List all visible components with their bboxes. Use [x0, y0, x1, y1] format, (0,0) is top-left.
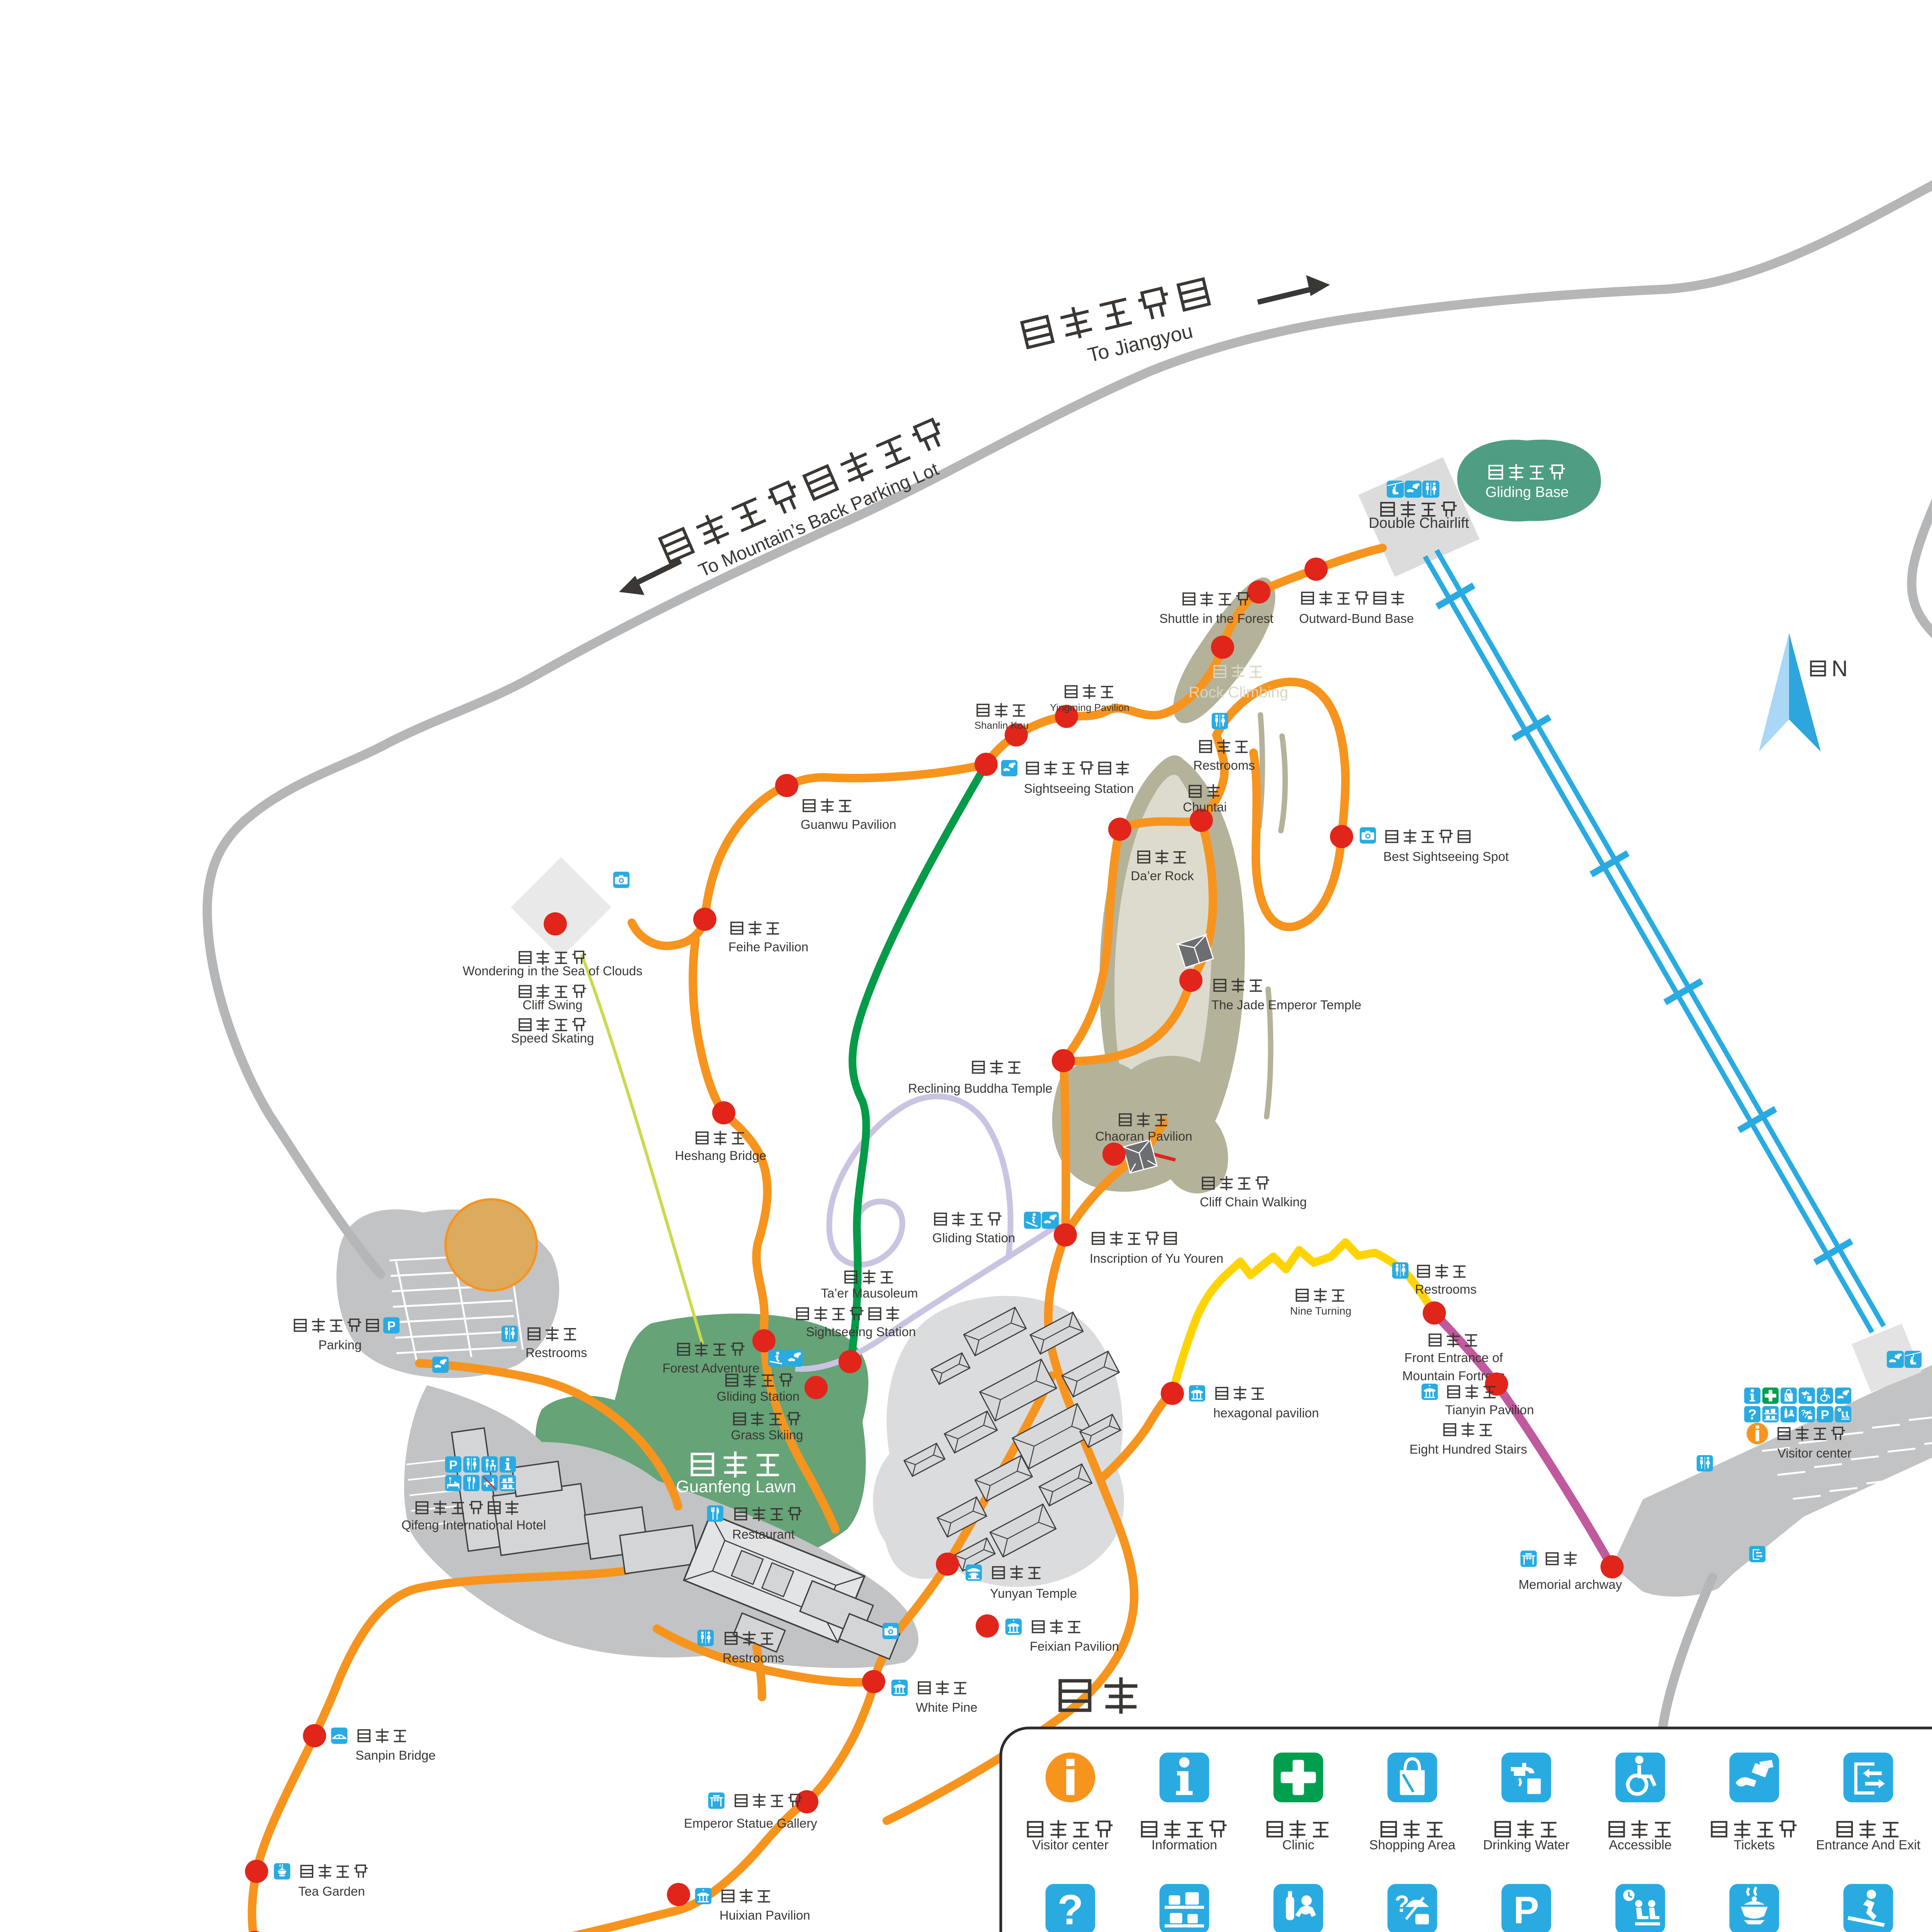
- svg-text:Visitor center: Visitor center: [1032, 1838, 1109, 1852]
- svg-text:Entrance And Exit: Entrance And Exit: [1816, 1838, 1921, 1852]
- svg-text:Feixian Pavilion: Feixian Pavilion: [1030, 1639, 1119, 1653]
- svg-text:Eight Hundred Stairs: Eight Hundred Stairs: [1410, 1442, 1527, 1456]
- svg-text:hexagonal pavilion: hexagonal pavilion: [1213, 1406, 1319, 1420]
- svg-text:Rock Climbing: Rock Climbing: [1189, 684, 1288, 701]
- svg-text:Memorial archway: Memorial archway: [1519, 1577, 1622, 1592]
- svg-text:Emperor Statue Gallery: Emperor Statue Gallery: [684, 1816, 817, 1830]
- svg-text:Feihe Pavilion: Feihe Pavilion: [728, 940, 808, 954]
- svg-text:Ta’er Mausoleum: Ta’er Mausoleum: [821, 1286, 918, 1300]
- svg-text:Sightseeing Station: Sightseeing Station: [806, 1325, 916, 1339]
- svg-text:Front Entrance of: Front Entrance of: [1405, 1350, 1503, 1365]
- svg-text:Heshang Bridge: Heshang Bridge: [675, 1148, 767, 1163]
- svg-text:Shanlin Kou: Shanlin Kou: [975, 719, 1029, 731]
- svg-text:Outward-Bund Base: Outward-Bund Base: [1299, 611, 1414, 626]
- svg-text:Restrooms: Restrooms: [723, 1651, 784, 1665]
- svg-text:Clinic: Clinic: [1282, 1838, 1314, 1852]
- svg-text:Restrooms: Restrooms: [526, 1345, 587, 1360]
- svg-text:Parking: Parking: [318, 1338, 362, 1352]
- svg-text:Information: Information: [1151, 1838, 1217, 1852]
- svg-text:Chuntai: Chuntai: [1183, 800, 1227, 814]
- svg-text:Gliding Station: Gliding Station: [717, 1389, 800, 1403]
- svg-text:Cliff Chain Walking: Cliff Chain Walking: [1200, 1195, 1307, 1209]
- svg-text:Accessible: Accessible: [1609, 1838, 1672, 1852]
- svg-text:Drinking Water: Drinking Water: [1483, 1838, 1570, 1852]
- svg-text:Gliding Base: Gliding Base: [1485, 484, 1568, 500]
- svg-text:Forest Adventure: Forest Adventure: [662, 1361, 759, 1375]
- svg-text:White Pine: White Pine: [916, 1700, 978, 1714]
- svg-text:Visitor center: Visitor center: [1777, 1446, 1852, 1460]
- svg-text:Yunyan Temple: Yunyan Temple: [990, 1586, 1077, 1600]
- svg-text:Guanwu Pavilion: Guanwu Pavilion: [801, 817, 896, 832]
- svg-text:Da’er Rock: Da’er Rock: [1131, 869, 1194, 883]
- svg-text:Speed Skating: Speed Skating: [511, 1031, 594, 1045]
- svg-text:Tianyin Pavilion: Tianyin Pavilion: [1445, 1403, 1534, 1417]
- svg-text:Guanfeng Lawn: Guanfeng Lawn: [676, 1477, 796, 1496]
- svg-text:N: N: [1832, 656, 1848, 681]
- svg-text:Huixian Pavilion: Huixian Pavilion: [719, 1908, 810, 1922]
- svg-text:Wondering in the Sea of Clouds: Wondering in the Sea of Clouds: [463, 964, 642, 978]
- svg-text:Qifeng International Hotel: Qifeng International Hotel: [401, 1518, 546, 1532]
- svg-text:Yingming Pavilion: Yingming Pavilion: [1050, 702, 1129, 713]
- svg-text:The Jade Emperor Temple: The Jade Emperor Temple: [1211, 998, 1361, 1012]
- svg-text:Shopping Area: Shopping Area: [1369, 1838, 1455, 1852]
- svg-text:Tea Garden: Tea Garden: [298, 1884, 365, 1898]
- svg-text:Reclining Buddha Temple: Reclining Buddha Temple: [908, 1081, 1053, 1095]
- svg-text:Cliff Swing: Cliff Swing: [522, 998, 582, 1012]
- svg-text:Shuttle in the Forest: Shuttle in the Forest: [1159, 611, 1273, 626]
- svg-text:Sanpin Bridge: Sanpin Bridge: [355, 1748, 435, 1762]
- svg-text:Restaurant: Restaurant: [732, 1527, 794, 1541]
- svg-text:Restrooms: Restrooms: [1193, 758, 1255, 772]
- svg-text:Inscription of Yu Youren: Inscription of Yu Youren: [1090, 1251, 1223, 1265]
- svg-text:Sightseeing Station: Sightseeing Station: [1024, 781, 1134, 796]
- svg-text:Gliding Station: Gliding Station: [932, 1231, 1015, 1245]
- svg-text:Best Sightseeing Spot: Best Sightseeing Spot: [1383, 849, 1509, 864]
- svg-text:Double Chairlift: Double Chairlift: [1369, 515, 1469, 531]
- svg-text:Chaoran Pavilion: Chaoran Pavilion: [1095, 1129, 1192, 1143]
- svg-text:Grass Skiing: Grass Skiing: [731, 1428, 803, 1442]
- svg-text:Restrooms: Restrooms: [1415, 1282, 1477, 1296]
- svg-text:Tickets: Tickets: [1734, 1838, 1775, 1852]
- svg-text:Nine Turning: Nine Turning: [1290, 1305, 1352, 1317]
